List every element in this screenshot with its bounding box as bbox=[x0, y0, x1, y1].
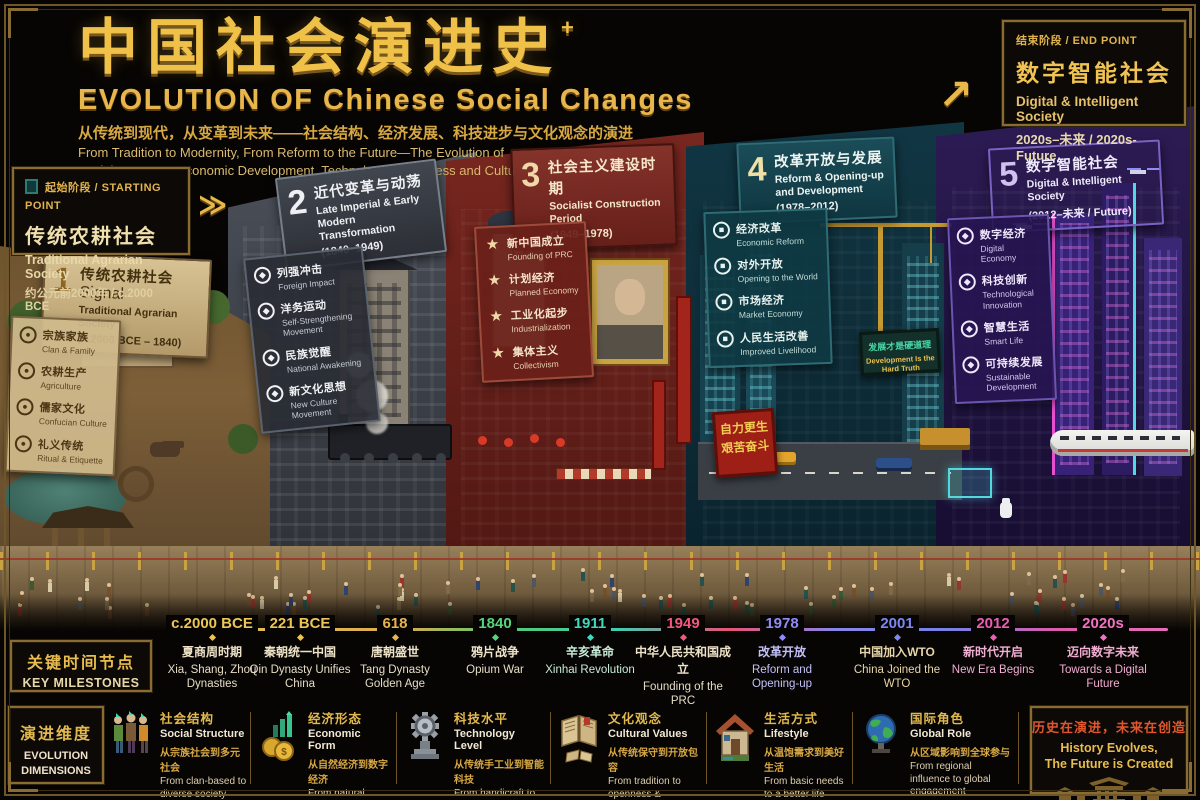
end-arrow-icon: ↗ bbox=[938, 70, 973, 119]
pedestrian bbox=[30, 581, 34, 590]
stage4-number: 4 bbox=[747, 152, 769, 216]
slogan-line2: 艰苦奋斗 bbox=[717, 436, 774, 459]
start-point-box: 起始阶段 / STARTING POINT 传统农耕社会 Traditional… bbox=[12, 167, 190, 255]
pedestrian bbox=[700, 577, 704, 586]
pedestrian bbox=[581, 572, 585, 581]
page-title-en: EVOLUTION OF Chinese Social Changes bbox=[78, 84, 693, 117]
house-icon bbox=[714, 708, 756, 770]
pedestrian bbox=[274, 580, 278, 589]
stage4-items-panel: ■经济改革Economic Reform ■对外开放Opening to the… bbox=[703, 208, 832, 368]
pedestrian bbox=[48, 583, 52, 592]
divider bbox=[1018, 712, 1019, 784]
start-point-title-zh: 传统农耕社会 bbox=[25, 220, 177, 249]
page-title-zh: 中国社会演进史+ bbox=[78, 16, 574, 79]
pedestrian bbox=[745, 577, 749, 586]
title-plus-decoration: + bbox=[561, 15, 574, 40]
slogan-banner: 自力更生 艰苦奋斗 bbox=[712, 408, 778, 478]
key-milestones-box: 关键时间节点 KEY MILESTONES bbox=[10, 640, 152, 692]
pedestrian bbox=[511, 583, 515, 592]
new-culture-icon: ◆ bbox=[266, 384, 285, 403]
tech-innovation-icon: ◆ bbox=[958, 274, 976, 292]
divider bbox=[550, 712, 551, 784]
milestone: 1978 改革开放 Reform and Opening-up bbox=[730, 615, 834, 692]
pedestrian bbox=[1053, 579, 1057, 588]
pedestrian bbox=[957, 581, 961, 590]
frame-corner-icon bbox=[8, 8, 38, 38]
milestone: 1840 鸦片战争 Opium War bbox=[443, 615, 547, 677]
start-point-time: 约公元前2000年 / c.2000 BCE bbox=[25, 285, 177, 313]
sustainable-icon: ◆ bbox=[962, 356, 980, 374]
start-arrow-icon: ≫ bbox=[198, 188, 227, 221]
divider bbox=[396, 712, 397, 784]
billboard-en: Development Is the Hard Truth bbox=[863, 353, 938, 375]
end-point-label: 结束阶段 / END POINT bbox=[1016, 32, 1172, 48]
globe-icon bbox=[860, 708, 902, 770]
start-point-label: 起始阶段 / STARTING POINT bbox=[25, 182, 161, 212]
dimension-technology-level: 科技水平 Technology Level 从传统手工业到智能科技 From h… bbox=[404, 708, 544, 800]
milestone: 1911 辛亥革命 Xinhai Revolution bbox=[538, 615, 642, 677]
clan-family-icon: ● bbox=[19, 326, 37, 344]
milestone: 618 唐朝盛世 Tang Dynasty Golden Age bbox=[343, 615, 447, 692]
foreign-impact-icon: ◆ bbox=[253, 266, 272, 285]
pedestrian bbox=[610, 578, 614, 587]
milestone: 1949 中华人民共和国成立 Founding of the PRC bbox=[631, 615, 735, 709]
divider bbox=[852, 712, 853, 784]
planned-economy-icon: ★ bbox=[485, 272, 503, 290]
milestone: 2012 新时代开启 New Era Begins bbox=[941, 615, 1045, 677]
smart-life-icon: ◆ bbox=[960, 320, 978, 338]
svg-text:$: $ bbox=[281, 747, 287, 758]
frame-corner-icon bbox=[1162, 762, 1192, 792]
pedestrian bbox=[1063, 574, 1067, 583]
pedestrian bbox=[947, 577, 951, 586]
milestone: 221 BCE 秦朝统一中国 Qin Dynasty Unifies China bbox=[248, 615, 352, 692]
start-point-icon bbox=[25, 179, 38, 194]
digital-economy-icon: ◆ bbox=[956, 227, 974, 245]
development-billboard: 发展才是硬道理 Development Is the Hard Truth bbox=[859, 328, 941, 376]
dimension-global-role: 国际角色 Global Role 从区域影响到全球参与 From regiona… bbox=[860, 708, 1012, 799]
end-point-time: 2020s–未来 / 2020s-Future bbox=[1016, 129, 1172, 163]
founding-prc-icon: ★ bbox=[484, 236, 502, 254]
dimension-lifestyle: 生活方式 Lifestyle 从温饱需求到美好生活 From basic nee… bbox=[714, 708, 848, 800]
end-point-title-en: Digital & Intelligent Society bbox=[1016, 94, 1172, 124]
end-point-box: 结束阶段 / END POINT 数字智能社会 Digital & Intell… bbox=[1002, 20, 1186, 126]
infographic-root: 自力更生 艰苦奋斗 发展才是硬道理 Development Is the Har… bbox=[0, 0, 1200, 800]
dimension-cultural-values: 文化观念 Cultural Values 从传统保守到开放包容 From tra… bbox=[558, 708, 700, 800]
national-awakening-icon: ◆ bbox=[262, 348, 281, 367]
page-subtitle-zh: 从传统到现代，从变革到未来——社会结构、经济发展、科技进步与文化观念的演进 bbox=[78, 122, 633, 143]
ritual-etiquette-icon: ● bbox=[15, 435, 33, 453]
pedestrian bbox=[1027, 576, 1031, 585]
dimension-social-structure: 社会结构 Social Structure 从宗族社会到多元社会 From cl… bbox=[110, 708, 248, 800]
start-point-title-en: Traditional Agrarian Society bbox=[25, 253, 177, 281]
dimension-economic-form: $ 经济形态 Economic Form 从自然经济到数字经济 From nat… bbox=[258, 708, 390, 800]
opening-world-icon: ■ bbox=[714, 257, 732, 275]
stage5-items-panel: ◆数字经济Digital Economy ◆科技创新Technological … bbox=[947, 214, 1057, 405]
divider bbox=[706, 712, 707, 784]
improved-livelihood-icon: ■ bbox=[716, 330, 734, 348]
self-strengthening-icon: ◆ bbox=[257, 302, 276, 321]
stage1-items-panel: ●宗族家族Clan & Family ●农耕生产Agriculture ●儒家文… bbox=[5, 316, 122, 476]
end-point-title-zh: 数字智能社会 bbox=[1016, 54, 1172, 88]
confucian-culture-icon: ● bbox=[16, 398, 34, 416]
frame-corner-icon bbox=[8, 762, 38, 792]
stage3-items-panel: ★新中国成立Founding of PRC ★计划经济Planned Econo… bbox=[474, 221, 594, 382]
pedestrian bbox=[532, 578, 536, 587]
frame-corner-icon bbox=[1162, 8, 1192, 38]
people-icon bbox=[110, 708, 152, 770]
industrialization-icon: ★ bbox=[487, 308, 505, 326]
coins-chart-icon: $ bbox=[258, 708, 300, 770]
agriculture-icon: ● bbox=[18, 362, 36, 380]
pedestrian bbox=[476, 581, 480, 590]
collectivism-icon: ★ bbox=[489, 344, 507, 362]
pedestrian bbox=[446, 585, 450, 594]
market-economy-icon: ■ bbox=[715, 294, 733, 312]
milestone: 2001 中国加入WTO China Joined the WTO bbox=[845, 615, 949, 692]
pedestrian bbox=[85, 582, 89, 591]
milestone: 2020s 迈向数字未来 Towards a Digital Future bbox=[1051, 615, 1155, 692]
billboard-zh: 发展才是硬道理 bbox=[862, 337, 937, 354]
divider bbox=[250, 712, 251, 784]
gear-icon bbox=[404, 708, 446, 770]
stage2-items-panel: ◆列强冲击Foreign Impact ◆洋务运动Self-Strengthen… bbox=[243, 246, 381, 434]
book-icon bbox=[558, 708, 600, 770]
pedestrian bbox=[1121, 573, 1125, 582]
economic-reform-icon: ■ bbox=[713, 221, 731, 239]
